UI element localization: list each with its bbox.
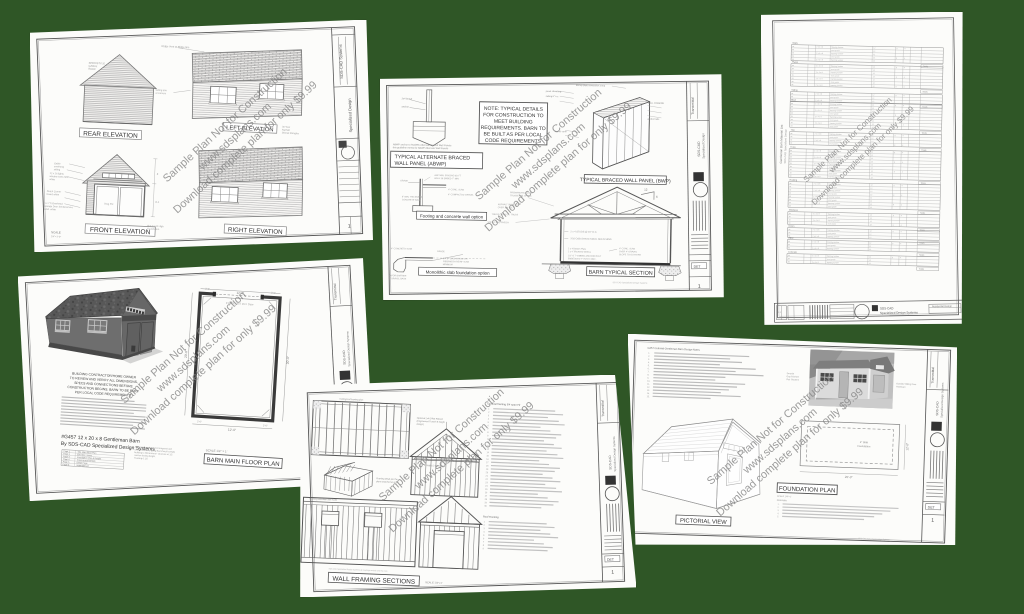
svg-text:2 x 4 x 8: 2 x 4 x 8 [813,213,820,215]
svg-text:xx: xx [789,172,791,174]
svg-text:RIGHT ELEVATION: RIGHT ELEVATION [227,226,282,235]
svg-text:framing lumber: framing lumber [830,72,842,74]
svg-text:Gentleman Barn Material List: Gentleman Barn Material List [779,124,784,163]
svg-text:stud grade: stud grade [827,222,836,225]
svg-text:this guideline meets for ABWP: this guideline meets for ABWP Alternate … [392,146,448,150]
svg-text:6.: 6. [647,368,649,370]
svg-text:Totals: Totals [919,253,924,256]
svg-text:21: 21 [486,475,489,477]
svg-text:Smartie: Smartie [786,372,794,375]
svg-text:Concrete: Concrete [788,251,798,254]
svg-text:framing lumber: framing lumber [830,78,842,80]
svg-text:12: 12 [870,207,872,209]
svg-text:8: 8 [896,67,897,69]
svg-text:12: 12 [872,73,874,75]
svg-text:12: 12 [872,79,874,81]
svg-text:12: 12 [872,101,874,103]
svg-text:2 x 4 x 8: 2 x 4 x 8 [812,241,819,243]
svg-text:Framing 6 1/2: Framing 6 1/2 [134,457,148,461]
svg-text:4.: 4. [777,513,779,515]
svg-text:4: 4 [901,204,902,206]
svg-text:3: 3 [484,528,486,530]
svg-text:12: 12 [873,54,875,56]
svg-text:4: 4 [901,185,902,187]
svg-text:xx: xx [790,125,792,127]
svg-text:xx: xx [790,159,792,161]
svg-text:2 x 4 x 8: 2 x 4 x 8 [816,53,823,55]
svg-text:6″ GRAVEL BASE: 6″ GRAVEL BASE [388,277,406,280]
svg-text:6 X 6 - 10/10 W.W.M. OR: 6 X 6 - 10/10 W.W.M. OR [442,258,467,260]
svg-text:stud grade: stud grade [827,232,836,235]
svg-text:xx: xx [791,116,793,118]
svg-text:SCALE 1/4″ = 1′: SCALE 1/4″ = 1′ [205,449,227,454]
svg-text:xx: xx [792,49,794,51]
svg-text:framing lumber: framing lumber [828,196,840,198]
svg-text:xx: xx [791,96,793,98]
svg-text:12: 12 [869,215,871,217]
svg-text:2 x 4 x 8: 2 x 4 x 8 [816,65,823,67]
svg-text:12: 12 [870,204,872,206]
svg-text:xx: xx [790,153,792,155]
svg-text:12: 12 [873,70,875,72]
svg-text:8: 8 [896,48,897,50]
svg-text:Foundation: Foundation [147,227,160,231]
svg-text:29: 29 [485,502,488,504]
svg-text:4: 4 [900,243,901,245]
svg-text:Dimnsl Shingles: Dimnsl Shingles [281,131,299,135]
svg-text:2 x 4 x 8: 2 x 4 x 8 [815,78,822,80]
svg-text:xx: xx [792,52,794,54]
svg-text:5.: 5. [777,516,779,518]
svg-text:8: 8 [895,77,896,79]
svg-text:12: 12 [870,177,872,179]
svg-text:framing lumber: framing lumber [830,85,842,87]
svg-text:2 x 4 x 8: 2 x 4 x 8 [814,157,821,159]
svg-text:12: 12 [869,234,871,236]
svg-text:stud grade: stud grade [830,96,839,99]
svg-text:SCALE: SCALE [51,230,61,234]
svg-text:6: 6 [655,195,657,199]
svg-text:xx: xx [790,119,792,121]
svg-text:framing lumber: framing lumber [830,94,842,96]
svg-text:Roof: Roof [791,100,796,102]
svg-text:REAR ELEVATION: REAR ELEVATION [83,130,138,139]
svg-text:12: 12 [873,48,875,50]
svg-text:12: 12 [644,188,648,192]
svg-text:framing lumber: framing lumber [827,220,839,222]
svg-text:xx: xx [788,229,790,231]
svg-text:Concrete:: Concrete: [776,499,787,502]
svg-text:14.: 14. [646,393,650,395]
svg-text:4″ CONCRETE SLAB: 4″ CONCRETE SLAB [391,247,413,250]
svg-text:8: 8 [893,204,894,206]
svg-text:xx: xx [790,122,792,124]
svg-text:12: 12 [869,221,871,223]
svg-text:2′-0″: 2′-0″ [263,425,268,428]
svg-text:8: 8 [892,225,893,227]
svg-text:stud grade: stud grade [829,119,838,122]
svg-text:8″ MIN. THICKNESS: 8″ MIN. THICKNESS [401,196,422,198]
svg-text:xx: xx [790,142,792,144]
svg-text:20: 20 [486,472,489,474]
svg-text:xx: xx [788,247,790,249]
svg-text:stud grade: stud grade [827,244,836,247]
svg-text:1.: 1. [648,352,650,354]
svg-text:Outside Sliding Door: Outside Sliding Door [896,382,916,386]
svg-text:xx: xx [788,232,790,234]
svg-text:3.: 3. [777,510,779,512]
svg-text:xx: xx [791,81,793,83]
svg-text:SDS-CAD Specialized Design Sys: SDS-CAD Specialized Design Systems [612,281,647,285]
svg-text:12: 12 [870,191,872,193]
svg-text:anchor: anchor [401,105,409,108]
svg-text:12: 12 [870,171,872,173]
svg-text:stud grade: stud grade [830,112,839,115]
svg-text:2 x 4 x 8: 2 x 4 x 8 [812,255,819,257]
svg-text:4″ CONC. SLAB: 4″ CONC. SLAB [448,188,464,191]
svg-text:4: 4 [902,152,903,154]
svg-text:28: 28 [485,499,488,501]
svg-text:4: 4 [901,195,902,197]
svg-text:2 x 4 STUDS @ 16″ O.C.: 2 x 4 STUDS @ 16″ O.C. [570,230,597,233]
svg-text:xx: xx [792,68,794,70]
svg-text:GRADE: GRADE [436,250,444,253]
svg-text:stud grade: stud grade [830,81,839,84]
svg-text:12: 12 [872,76,874,78]
svg-text:xx: xx [788,241,790,243]
svg-text:23: 23 [486,482,489,484]
svg-text:SLOPE TO GUTTERS: SLOPE TO GUTTERS [618,254,640,256]
svg-text:Ridge Vent at Ridge line: Ridge Vent at Ridge line [161,44,190,49]
svg-text:stud grade: stud grade [831,55,840,58]
svg-text:stud grade: stud grade [827,258,836,261]
svg-text:17: 17 [486,462,489,464]
svg-text:xx: xx [792,55,794,57]
svg-text:xx: xx [788,222,790,224]
svg-text:1: 1 [484,521,486,523]
svg-text:1/2″ O 7″ EMBED ANCHOR BOLT: 1/2″ O 7″ EMBED ANCHOR BOLT [567,254,601,258]
svg-text:Siding: Siding [791,90,798,92]
svg-text:12: 12 [870,197,872,199]
svg-text:4: 4 [902,135,903,137]
svg-text:5: 5 [483,534,485,536]
svg-text:2 x 4 x 8: 2 x 4 x 8 [816,46,823,48]
svg-text:12: 12 [869,246,871,248]
svg-text:xx: xx [792,46,794,48]
svg-text:framing lumber: framing lumber [828,203,840,205]
svg-text:4: 4 [900,215,901,217]
svg-text:xx: xx [788,216,790,218]
svg-text:MINIMUM: MINIMUM [442,264,452,266]
svg-text:7: 7 [483,541,485,543]
svg-text:G457 Colonial Gentleman Barn D: G457 Colonial Gentleman Barn Design Note… [647,345,700,351]
svg-text:12: 12 [869,249,871,251]
svg-text:4: 4 [900,257,901,259]
svg-text:2 x 4 x 8: 2 x 4 x 8 [815,100,822,102]
svg-text:Totals: Totals [918,267,923,270]
svg-text:11.: 11. [647,383,650,385]
svg-text:BARN TYPICAL SECTION: BARN TYPICAL SECTION [588,270,652,277]
svg-text:8: 8 [892,243,893,245]
svg-text:2 x 4 x 8: 2 x 4 x 8 [812,248,819,250]
svg-text:7/16 OSB STRUCTURAL SHEATHING: 7/16 OSB STRUCTURAL SHEATHING [570,237,612,241]
svg-text:8: 8 [894,145,895,147]
svg-text:xx: xx [788,258,790,260]
svg-text:design): design) [417,423,425,425]
svg-text:12′-0″: 12′-0″ [228,428,237,433]
svg-text:stud grade: stud grade [829,125,838,128]
svg-text:stud grade: stud grade [828,199,837,202]
svg-text:stud grade: stud grade [831,49,840,52]
svg-text:12: 12 [872,95,874,97]
svg-text:Materials List: Materials List [76,464,89,468]
svg-text:Optional 2x4 D/Rat Raised: Optional 2x4 D/Rat Raised [417,416,444,420]
svg-text:xx: xx [790,139,792,141]
svg-text:wind. white: wind. white [44,208,57,212]
svg-text:12: 12 [870,194,872,196]
svg-text:2 x 4 Bottom Plate: 2 x 4 Bottom Plate [568,247,587,250]
svg-text:framing lumber: framing lumber [827,236,839,238]
svg-text:2 x 4 x 8: 2 x 4 x 8 [811,262,818,264]
svg-text:12: 12 [870,168,872,170]
svg-text:2′-0″: 2′-0″ [205,288,210,291]
svg-text:1/4″=1′-0″: 1/4″=1′-0″ [50,235,61,238]
svg-text:4: 4 [484,531,486,533]
svg-text:stud grade: stud grade [830,106,839,109]
svg-text:framing lumber: framing lumber [831,53,843,55]
svg-text:anchor bolts: anchor bolts [647,118,660,121]
svg-text:Page 6: Page 6 [62,465,70,467]
svg-text:framing lumber: framing lumber [830,116,842,118]
svg-text:xx: xx [791,109,793,111]
svg-text:framing lumber: framing lumber [830,100,842,102]
svg-text:SDS-CAD Specialized Design Sys: SDS-CAD Specialized Design Systems all c… [329,567,389,572]
svg-text:20′-0″: 20′-0″ [844,475,852,479]
svg-text:8: 8 [892,231,893,233]
svg-text:8: 8 [156,172,158,176]
svg-text:8: 8 [892,257,893,259]
svg-text:SCALE 1/4″=1′: SCALE 1/4″=1′ [426,580,444,585]
svg-text:WALL PANEL (ABWP): WALL PANEL (ABWP) [394,161,446,168]
svg-text:stud grade: stud grade [827,216,836,219]
svg-text:24: 24 [485,485,488,487]
svg-text:16: 16 [487,458,490,460]
svg-text:12′-0″: 12′-0″ [905,443,909,451]
svg-text:9.: 9. [647,377,649,379]
svg-text:4: 4 [904,58,905,60]
svg-text:framing lumber: framing lumber [830,104,842,106]
svg-text:12: 12 [869,231,871,233]
svg-text:12.: 12. [647,387,651,389]
svg-text:4: 4 [902,162,903,164]
svg-text:FIBERMESH REINF SLAB: FIBERMESH REINF SLAB [442,260,469,263]
svg-text:Plates: Plates [792,61,799,64]
svg-text:Walls: Walls [792,43,798,45]
svg-text:framing lumber: framing lumber [829,123,841,125]
svg-text:15.: 15. [646,396,650,398]
svg-text:Hdwr: Hdwr [788,237,793,240]
svg-text:27: 27 [485,495,488,497]
svg-text:VAPOR BARRIER: VAPOR BARRIER [388,274,406,277]
svg-text:12: 12 [872,86,874,88]
svg-text:9: 9 [483,548,485,550]
svg-text:xx: xx [791,78,793,80]
svg-text:FOR CONSTRUCTION TO: FOR CONSTRUCTION TO [483,112,544,119]
svg-text:GRADE: GRADE [400,179,408,182]
svg-text:2: 2 [484,524,486,526]
svg-text:12: 12 [869,218,871,220]
svg-text:xx: xx [788,244,790,246]
svg-text:stud grade: stud grade [830,74,839,77]
svg-text:board white: board white [46,193,59,197]
svg-text:xx: xx [790,163,792,165]
svg-text:OVER 4″ GRAVEL: OVER 4″ GRAVEL [618,250,637,253]
svg-text:framing lumber: framing lumber [829,134,841,136]
svg-text:2 x 4 x 8: 2 x 4 x 8 [814,123,821,125]
svg-text:xx: xx [789,183,791,185]
svg-text:2x4 brace: 2x4 brace [401,97,412,100]
svg-text:18: 18 [486,465,489,467]
svg-text:framing lumber: framing lumber [827,230,839,232]
svg-text:xx: xx [788,255,790,257]
svg-text:8.: 8. [647,374,649,376]
svg-text:12: 12 [871,161,873,163]
svg-text:2 x 4 x 8: 2 x 4 x 8 [815,116,822,118]
svg-text:Ceiling/roof framing plan: Ceiling/roof framing plan [340,397,365,401]
svg-text:8: 8 [893,195,894,197]
svg-text:5.: 5. [647,365,649,367]
svg-text:framing lumber: framing lumber [826,262,838,264]
svg-text:4: 4 [900,225,901,227]
svg-text:stud grade: stud grade [829,136,838,139]
svg-text:4″ Slab: 4″ Slab [859,440,868,444]
svg-text:xx: xx [791,106,793,108]
svg-text:4″ CONC. SLAB: 4″ CONC. SLAB [619,247,635,250]
svg-text:2.: 2. [648,356,650,358]
svg-text:framing lumber: framing lumber [831,59,843,61]
svg-text:xx: xx [789,175,791,177]
svg-text:12: 12 [871,158,873,160]
svg-text:20′-0″: 20′-0″ [285,356,290,365]
svg-text:12: 12 [872,98,874,100]
svg-text:12: 12 [869,243,871,245]
svg-text:12: 12 [872,105,874,107]
svg-text:xx: xx [791,74,793,76]
svg-text:22: 22 [486,478,489,480]
svg-text:WALL 36 EMBED 7″ MIN: WALL 36 EMBED 7″ MIN [434,177,459,180]
svg-text:6: 6 [483,538,485,540]
svg-text:xx: xx [791,84,793,86]
svg-text:4: 4 [904,67,905,69]
svg-text:8: 8 [894,162,895,164]
svg-text:1.: 1. [777,504,779,506]
svg-text:framing lumber: framing lumber [827,256,839,258]
svg-text:framing lumber: framing lumber [831,47,843,49]
svg-text:4: 4 [900,231,901,233]
svg-text:CONCRETE WALL: CONCRETE WALL [401,198,421,201]
svg-text:stud grade: stud grade [828,205,837,208]
svg-text:xx: xx [790,133,792,135]
svg-text:nailing 6" o.c.: nailing 6" o.c. [545,96,558,98]
svg-text:4: 4 [902,145,903,147]
svg-text:2 x 4 x 8: 2 x 4 x 8 [816,59,823,61]
svg-text:SDS-CAD Specialized Design Sys: SDS-CAD Specialized Design Systems [858,537,889,541]
svg-text:13.: 13. [646,390,650,392]
svg-text:framing lumber: framing lumber [830,110,842,112]
svg-text:12: 12 [873,67,875,69]
svg-text:2 x 4 x 8: 2 x 4 x 8 [812,236,819,238]
svg-text:Doors: Doors [788,225,795,228]
svg-text:Trim: Trim [790,129,795,132]
svg-text:4.: 4. [647,362,649,364]
svg-text:7.: 7. [647,371,649,373]
svg-text:12: 12 [868,263,870,265]
svg-text:2 x 4 x 8: 2 x 4 x 8 [815,93,822,95]
svg-text:xx: xx [791,112,793,114]
svg-text:xx: xx [790,150,792,152]
svg-text:xx: xx [792,65,794,67]
svg-text:12: 12 [870,185,872,187]
svg-text:white: white [49,178,55,181]
svg-text:Totals: Totals [919,241,924,244]
svg-text:Monolithic slab foundation opt: Monolithic slab foundation option [425,269,490,275]
svg-text:panel sheathing: panel sheathing [545,90,561,93]
svg-text:2 x 4 x 8: 2 x 4 x 8 [814,150,821,152]
svg-text:xx: xx [791,93,793,95]
svg-text:12: 12 [869,237,871,239]
svg-text:12: 12 [870,201,872,203]
svg-text:Dwg Pnt: Dwg Pnt [104,202,113,205]
svg-text:12: 12 [873,57,875,59]
svg-text:12: 12 [869,257,871,259]
svg-text:8: 8 [894,135,895,137]
svg-text:3.: 3. [648,359,650,361]
svg-text:framing lumber: framing lumber [827,248,839,250]
svg-text:12: 12 [871,164,873,166]
svg-text:2 x 4 x 8: 2 x 4 x 8 [815,110,822,112]
svg-text:stud grade: stud grade [831,68,840,71]
svg-text:xx: xx [790,136,792,138]
svg-text:4: 4 [901,171,902,173]
svg-text:30: 30 [485,505,488,507]
svg-text:2 x 4 x 8: 2 x 4 x 8 [815,103,822,105]
svg-text:2 x 4 x 8: 2 x 4 x 8 [815,72,822,74]
svg-text:15: 15 [487,455,490,457]
svg-text:19: 19 [486,468,489,470]
svg-text:xx: xx [787,261,789,263]
svg-text:12: 12 [870,188,872,190]
svg-text:2′-0″: 2′-0″ [197,421,202,424]
svg-text:SCALE 1/4″=1′: SCALE 1/4″=1′ [776,495,791,499]
svg-text:Roof Framing: Roof Framing [483,514,499,519]
svg-text:2 x 4 x 8: 2 x 4 x 8 [814,140,821,142]
svg-text:2.: 2. [777,507,779,509]
svg-text:2 x 4 TREATED W/SILL: 2 x 4 TREATED W/SILL [567,250,591,253]
svg-text:Totals: Totals [921,131,926,134]
svg-text:framing lumber: framing lumber [827,214,839,216]
svg-text:8: 8 [893,171,894,173]
svg-text:2 x 4 x 8: 2 x 4 x 8 [812,229,819,231]
svg-text:Totals: Totals [920,211,925,214]
svg-text:10.: 10. [647,380,651,382]
svg-text:ANC MIN. SPACING 6D FT: ANC MIN. SPACING 6D FT [434,174,462,177]
svg-text:8: 8 [893,185,894,187]
svg-text:12: 12 [869,260,871,262]
svg-text:Truss: Truss [790,146,796,149]
svg-text:xx: xx [791,103,793,105]
svg-text:xx: xx [789,169,791,171]
svg-text:siding: siding [53,168,60,171]
